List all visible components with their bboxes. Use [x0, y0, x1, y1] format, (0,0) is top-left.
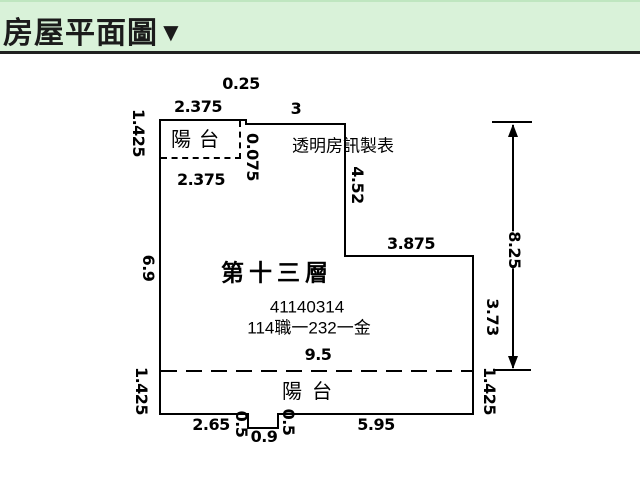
- dim-label-right-bottom-height: 1.425: [481, 367, 497, 415]
- dim-label-balcony-inner-width: 2.375: [177, 172, 225, 188]
- wall-step: [344, 255, 474, 257]
- balcony-top-dashed-bottom: [161, 157, 241, 159]
- dim-label-left-bottom-height: 1.425: [133, 367, 149, 415]
- header-separator-line: [0, 51, 640, 54]
- dim-label-top-balcony-width: 2.375: [174, 99, 222, 115]
- dim-label-notch-right-depth: 0.5: [280, 409, 296, 436]
- wall-top-main: [245, 123, 346, 125]
- dim-label-right-lower-height: 3.73: [484, 298, 500, 335]
- floor-plan-page: 房屋平面圖▼ 0.25 2.375 3 1.425 0.075 2.375 4.…: [0, 0, 640, 477]
- section-title: 房屋平面圖▼: [3, 8, 185, 52]
- dim-label-left-mid-height: 6.9: [140, 255, 156, 282]
- dim-label-bottom-right-width: 5.95: [357, 417, 394, 433]
- dim-label-top-jog-width: 0.25: [222, 76, 259, 92]
- collapse-triangle-icon[interactable]: ▼: [158, 17, 185, 47]
- dim-label-step-width: 3.875: [387, 236, 435, 252]
- dim-label-notch-left-depth: 0.5: [233, 411, 249, 438]
- dim-arrow-down-icon: [508, 356, 518, 369]
- balcony-bottom-label: 陽台: [282, 382, 342, 402]
- section-header-floor-plan[interactable]: 房屋平面圖▼: [0, 0, 640, 51]
- dim-label-notch-width: 0.9: [251, 429, 278, 445]
- section-title-text: 房屋平面圖: [3, 17, 158, 50]
- dim-label-bottom-left-width: 2.65: [192, 417, 229, 433]
- wall-right-lower: [472, 255, 474, 415]
- balcony-top-label: 陽台: [171, 130, 227, 150]
- dim-label-overall-right-height: 8.25: [504, 231, 524, 268]
- wall-top-balcony: [159, 119, 247, 121]
- balcony-bottom-dashed-divider: [161, 370, 472, 372]
- floor-label: 第十三層: [221, 262, 333, 285]
- case-number: 114職一232一金: [247, 320, 370, 337]
- maker-watermark: 透明房訊製表: [292, 138, 394, 155]
- registration-number: 41140314: [270, 299, 344, 316]
- dim-label-interior-width: 9.5: [305, 347, 332, 363]
- balcony-top-dashed-right: [239, 121, 241, 159]
- dim-label-left-top-height: 1.425: [130, 109, 146, 157]
- dim-tick-top: [492, 121, 532, 123]
- dim-label-top-main-width: 3: [291, 101, 302, 117]
- dim-label-right-upper-height: 4.52: [349, 166, 365, 203]
- dim-arrow-up-icon: [508, 124, 518, 137]
- dim-label-jog-height: 0.075: [244, 133, 260, 181]
